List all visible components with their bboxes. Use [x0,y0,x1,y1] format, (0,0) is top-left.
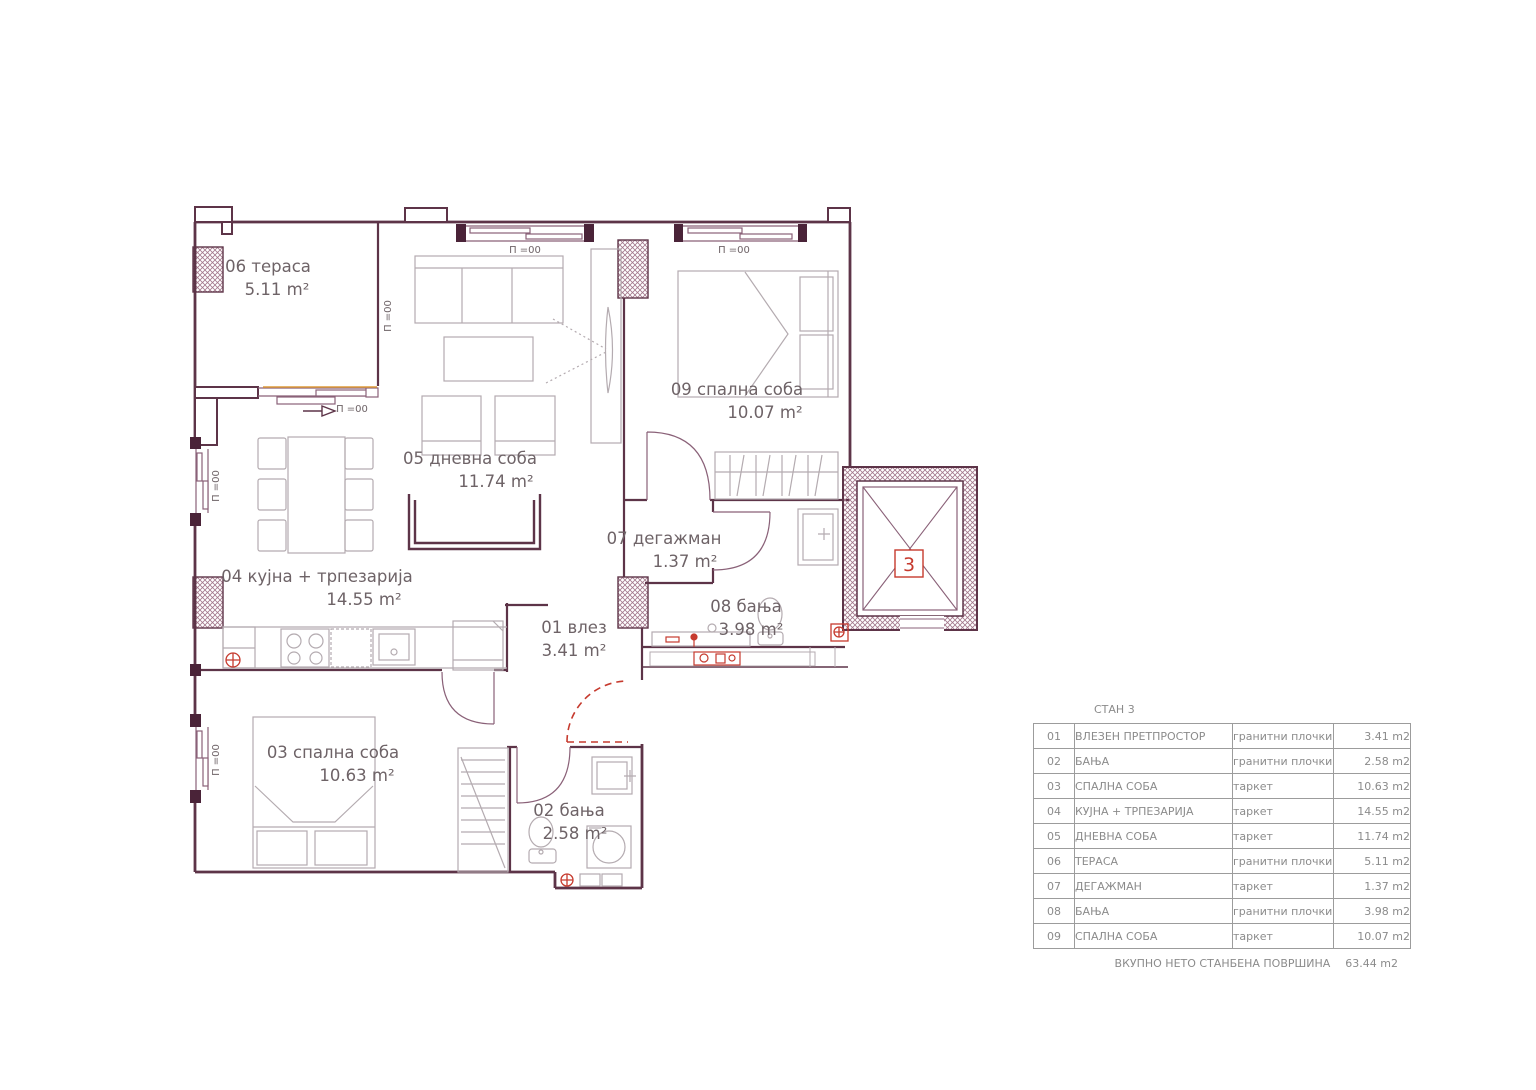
room-area-04-kitchen: 14.55 m² [326,590,401,609]
cabinet [580,874,600,886]
table-footer: ВКУПНО НЕТО СТАНБЕНА ПОВРШИНА63.44 m2 [1033,957,1406,970]
interior-walls [195,222,850,872]
level-markers: П =00 П =00 П =00 П =00 П =00 П =00 [211,245,750,776]
room-label-04-kitchen: 04 кујна + трпезарија [221,567,413,586]
fire-cabinet [694,652,740,665]
terrace-step-wall [195,387,258,398]
cell-name: ДНЕВНА СОБА [1075,824,1233,849]
vanity [798,509,838,565]
room-area-01-entry: 3.41 m² [542,641,607,660]
door-bedroom03 [442,672,494,724]
cell-floor: гранитни плочки [1233,899,1334,924]
bed [678,271,838,397]
footer-value: 63.44 m2 [1345,957,1398,970]
cell-name: КУЈНА + ТРПЕЗАРИЈА [1075,799,1233,824]
terrace-sliding-door [258,387,378,404]
room-label-02-bath: 02 бања [533,801,604,820]
sofa [415,256,563,323]
cabinet [602,874,622,886]
level-marker: П =00 [211,470,222,502]
stove [281,629,329,667]
level-marker: П =00 [383,300,394,332]
furniture-bedroom-03 [253,717,508,872]
chair [258,479,286,510]
table-row: 01 ВЛЕЗЕН ПРЕТПРОСТОР гранитни плочки 3.… [1034,724,1411,749]
room-area-06-terrace: 5.11 m² [245,280,310,299]
pier [193,247,223,292]
table-row: 03 СПАЛНА СОБА таркет 10.63 m2 [1034,774,1411,799]
elevator-number: 3 [903,554,915,576]
table-row: 02 БАЊА гранитни плочки 2.58 m2 [1034,749,1411,774]
area-table-grid: 01 ВЛЕЗЕН ПРЕТПРОСТОР гранитни плочки 3.… [1033,723,1411,949]
armchair [495,396,555,455]
room-area-09-bedroom: 10.07 m² [727,403,802,422]
entry-door-swing [567,681,628,742]
cell-area: 2.58 m2 [1334,749,1411,774]
sink [373,629,415,665]
level-marker: П =00 [336,404,368,415]
cell-name: ДЕГАЖМАН [1075,874,1233,899]
cell-name: СПАЛНА СОБА [1075,924,1233,949]
door-bathroom02 [517,747,570,803]
cell-floor: таркет [1233,824,1334,849]
room-area-08-bath: 3.98 m² [719,620,784,639]
cell-area: 3.41 m2 [1334,724,1411,749]
room-area-05-living: 11.74 m² [458,472,533,491]
counter [223,627,507,668]
cell-area: 10.07 m2 [1334,924,1411,949]
bed [253,717,375,868]
cell-floor: таркет [1233,799,1334,824]
exterior-walls [195,207,850,888]
tap-symbols [666,634,697,647]
room-label-05-living: 05 дневна соба [403,449,537,468]
pier [193,577,223,628]
level-marker: П =00 [509,245,541,256]
cell-floor: таркет [1233,874,1334,899]
door-bathroom08 [713,512,770,570]
coffee-table [444,337,533,381]
room-label-07-corridor: 07 дегажман [607,529,722,548]
room-area-07-corridor: 1.37 m² [653,552,718,571]
furniture-dining [258,437,373,553]
cell-area: 1.37 m2 [1334,874,1411,899]
facade-step [222,222,232,234]
table-row: 08 БАЊА гранитни плочки 3.98 m2 [1034,899,1411,924]
wardrobe [715,452,838,499]
window-kitchen-left [196,449,208,513]
room-area-02-bath: 2.58 m² [543,824,608,843]
room-label-08-bath: 08 бања [710,597,781,616]
chair [345,520,373,551]
level-marker: П =00 [211,744,222,776]
facade-bump [195,207,232,222]
elevator-door [900,616,944,631]
area-table: СТАН 3 01 ВЛЕЗЕН ПРЕТПРОСТОР гранитни пл… [1033,702,1406,970]
room-label-03-bedroom: 03 спална соба [267,743,399,762]
cell-area: 5.11 m2 [1334,849,1411,874]
tv-stand [409,494,540,549]
cell-num: 01 [1034,724,1075,749]
facade-bump [828,208,850,222]
dining-table [288,437,345,553]
room-label-06-terrace: 06 тераса [225,257,311,276]
furniture-bathroom-02 [529,757,636,886]
fridge [453,621,503,670]
cell-area: 11.74 m2 [1334,824,1411,849]
cell-floor: таркет [1233,924,1334,949]
drawing-sheet: 3 [0,0,1536,1086]
table-row: 05 ДНЕВНА СОБА таркет 11.74 m2 [1034,824,1411,849]
cell-floor: гранитни плочки [1233,749,1334,774]
cell-area: 10.63 m2 [1334,774,1411,799]
wall-jambs [190,224,807,803]
facade-bump [405,208,447,222]
room-label-09-bedroom: 09 спална соба [671,380,803,399]
cell-num: 02 [1034,749,1075,774]
riser-symbol [226,653,240,667]
table-row: 09 СПАЛНА СОБА таркет 10.07 m2 [1034,924,1411,949]
table-row: 07 ДЕГАЖМАН таркет 1.37 m2 [1034,874,1411,899]
cell-floor: гранитни плочки [1233,849,1334,874]
cell-area: 3.98 m2 [1334,899,1411,924]
window-living-top [466,226,584,241]
cell-num: 04 [1034,799,1075,824]
floor-drain [708,624,716,632]
corner-cabinet [223,627,255,668]
chair [345,479,373,510]
elevator-shaft: 3 [843,467,977,631]
table-title: СТАН 3 [1033,702,1406,717]
table-row: 04 КУЈНА + ТРПЕЗАРИЈА таркет 14.55 m2 [1034,799,1411,824]
cell-num: 09 [1034,924,1075,949]
cell-name: СПАЛНА СОБА [1075,774,1233,799]
cell-floor: таркет [1233,774,1334,799]
cell-num: 06 [1034,849,1075,874]
entry-direction-arrow [303,406,335,416]
dishwasher [331,629,371,667]
riser-symbol [561,874,573,886]
cell-name: ТЕРАСА [1075,849,1233,874]
window-bedroom09-top [683,226,798,241]
chair [258,438,286,469]
wardrobe [458,748,508,872]
sink [592,757,636,794]
chair [258,520,286,551]
pier [618,240,648,298]
cell-floor: гранитни плочки [1233,724,1334,749]
cell-num: 07 [1034,874,1075,899]
table-row: 06 ТЕРАСА гранитни плочки 5.11 m2 [1034,849,1411,874]
room-area-03-bedroom: 10.63 m² [319,766,394,785]
cell-name: ВЛЕЗЕН ПРЕТПРОСТОР [1075,724,1233,749]
window-bedroom03-left [196,727,208,790]
sightlines [546,319,606,383]
cell-num: 08 [1034,899,1075,924]
door-living-pivot [606,307,613,393]
level-marker: П =00 [718,245,750,256]
door-bedroom09 [647,432,710,500]
furniture-kitchen [223,621,507,670]
room-label-01-entry: 01 влез [541,618,606,637]
cell-num: 05 [1034,824,1075,849]
cell-name: БАЊА [1075,749,1233,774]
cell-name: БАЊА [1075,899,1233,924]
pier [618,577,648,628]
footer-label: ВКУПНО НЕТО СТАНБЕНА ПОВРШИНА [1115,957,1331,970]
cell-num: 03 [1034,774,1075,799]
cell-area: 14.55 m2 [1334,799,1411,824]
chair [345,438,373,469]
armchair [422,396,481,455]
furniture-living-room [409,249,621,549]
